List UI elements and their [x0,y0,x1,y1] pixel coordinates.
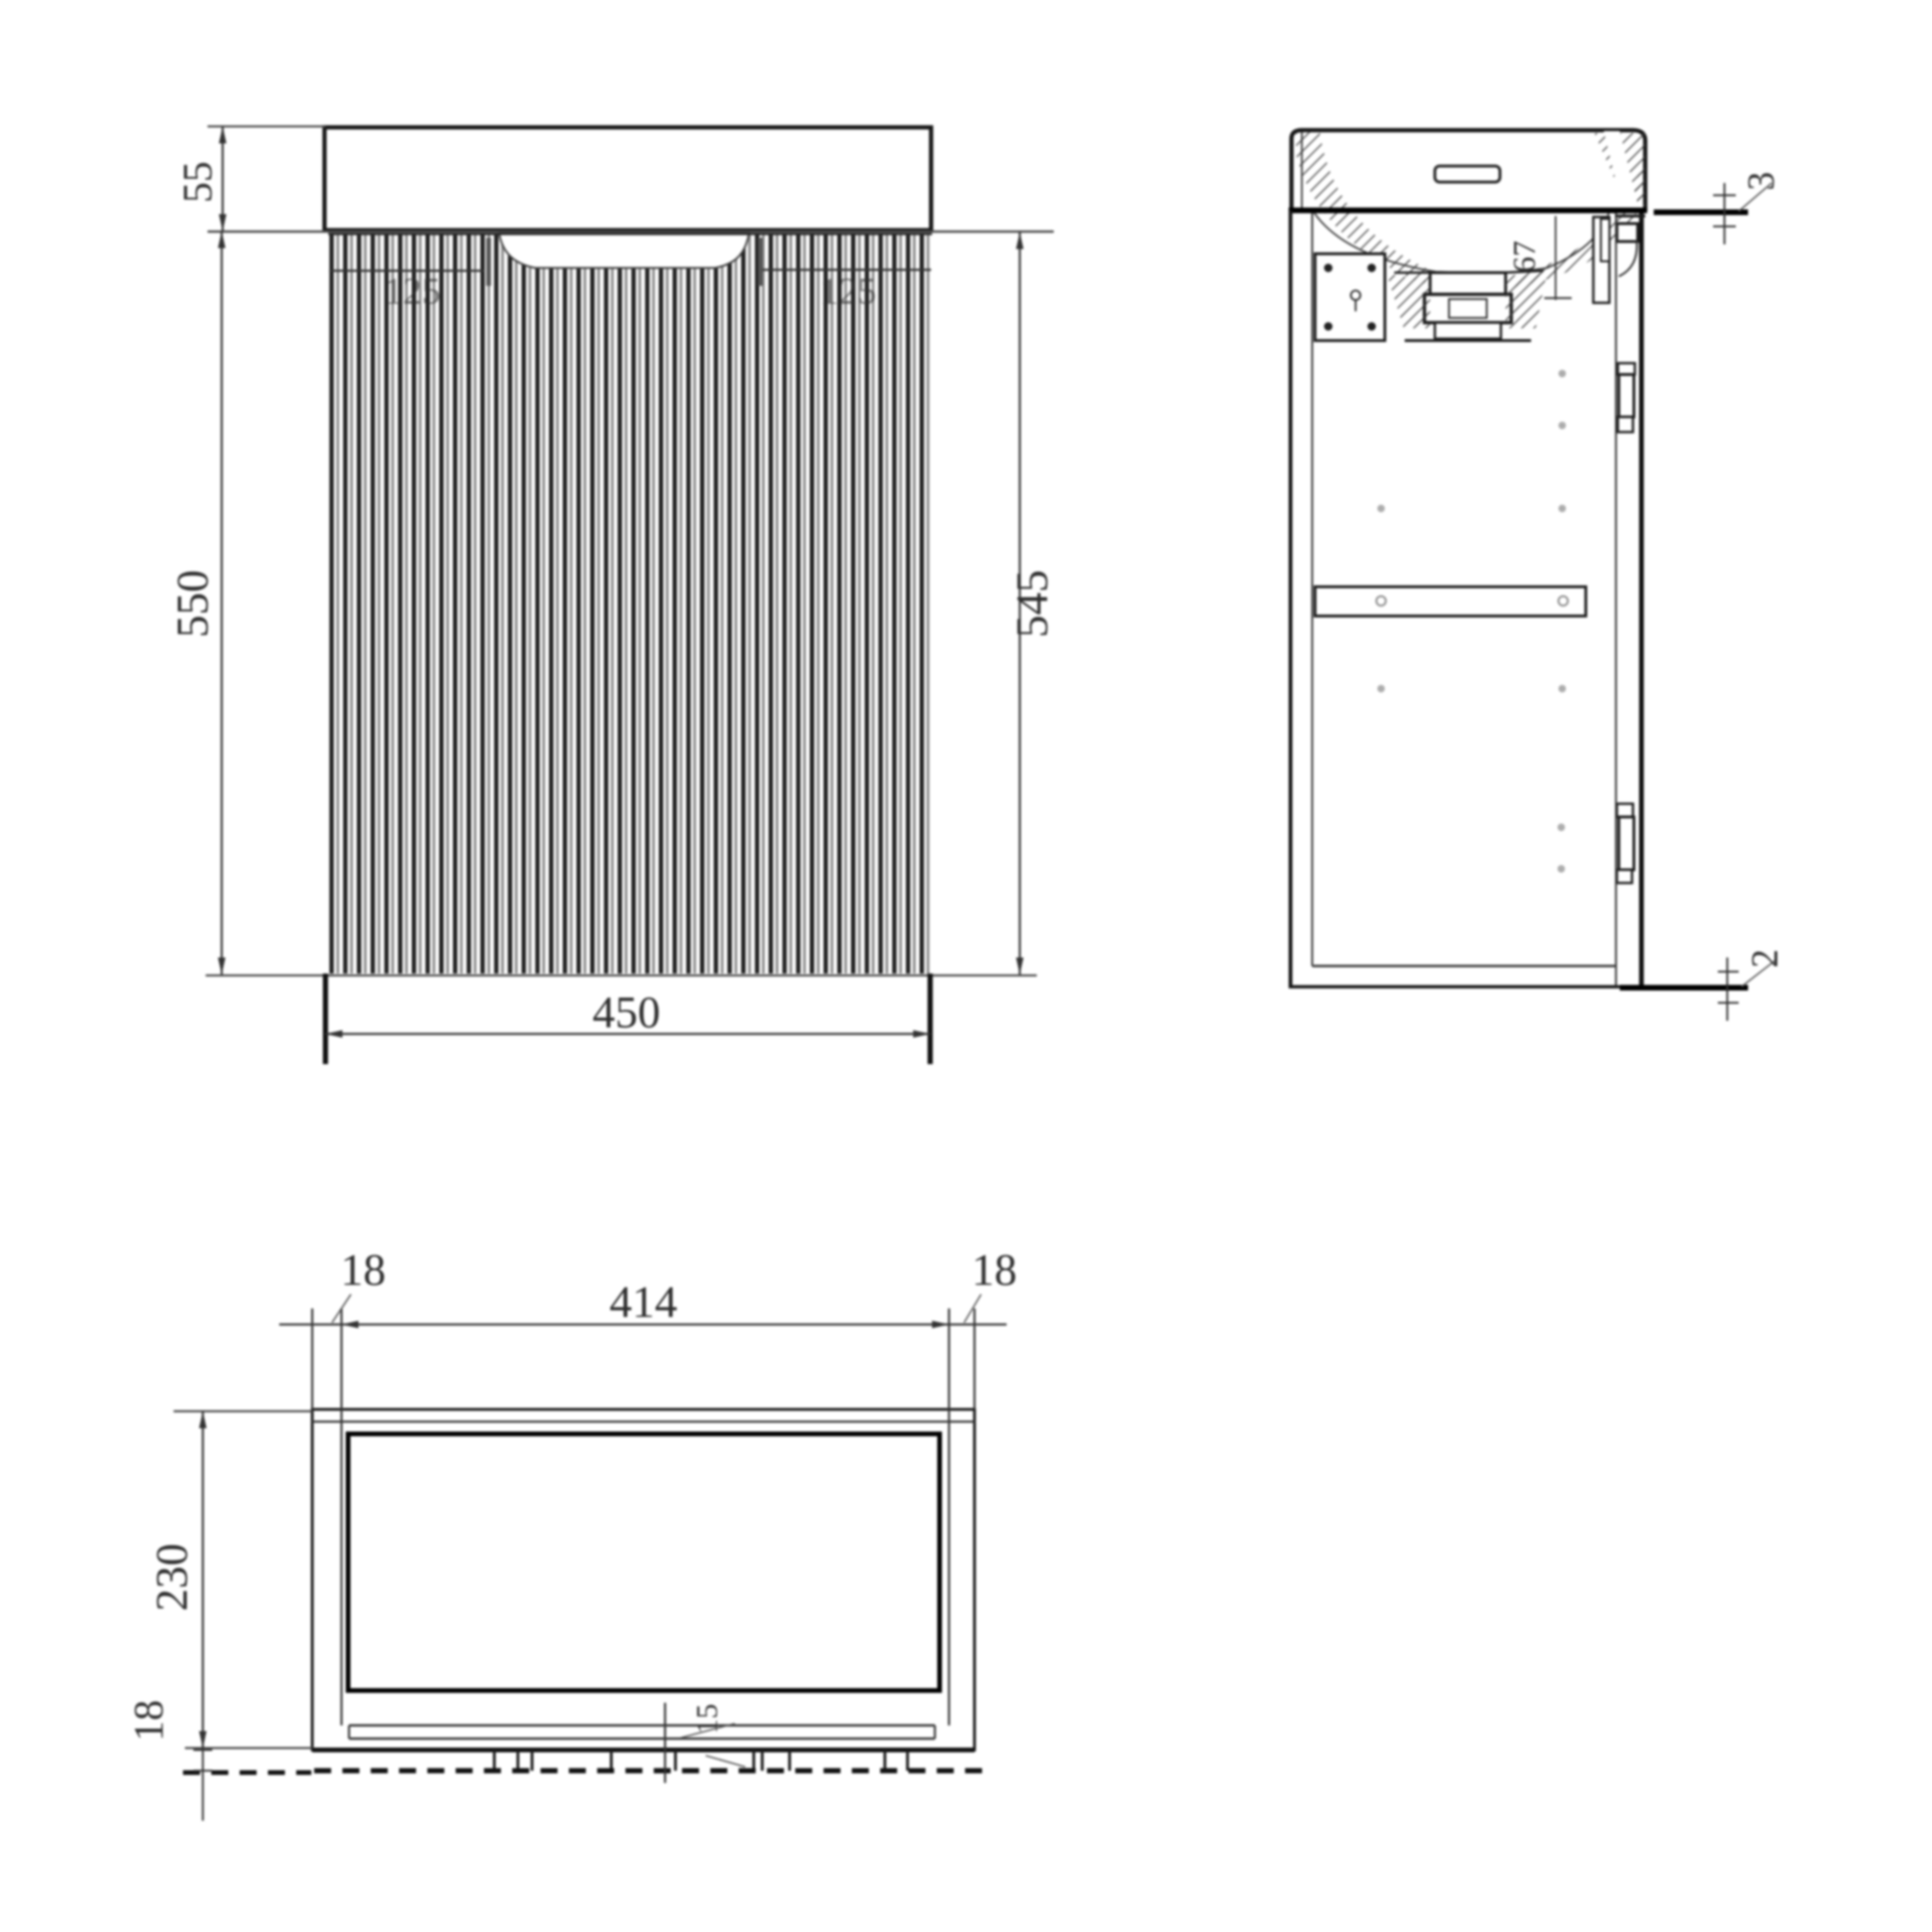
svg-text:550: 550 [168,570,218,638]
svg-text:2: 2 [1743,949,1786,968]
svg-text:545: 545 [1008,570,1058,638]
svg-text:18: 18 [125,1700,172,1741]
svg-text:18: 18 [972,1245,1017,1295]
svg-text:15: 15 [690,1704,724,1734]
svg-text:18: 18 [341,1245,386,1295]
svg-text:230: 230 [147,1543,197,1611]
svg-text:125: 125 [384,270,441,312]
svg-text:125: 125 [820,270,876,312]
svg-text:55: 55 [175,161,221,203]
svg-text:414: 414 [609,1277,677,1327]
svg-text:450: 450 [592,988,660,1038]
svg-text:3: 3 [1740,172,1782,191]
svg-text:67: 67 [1507,241,1542,273]
